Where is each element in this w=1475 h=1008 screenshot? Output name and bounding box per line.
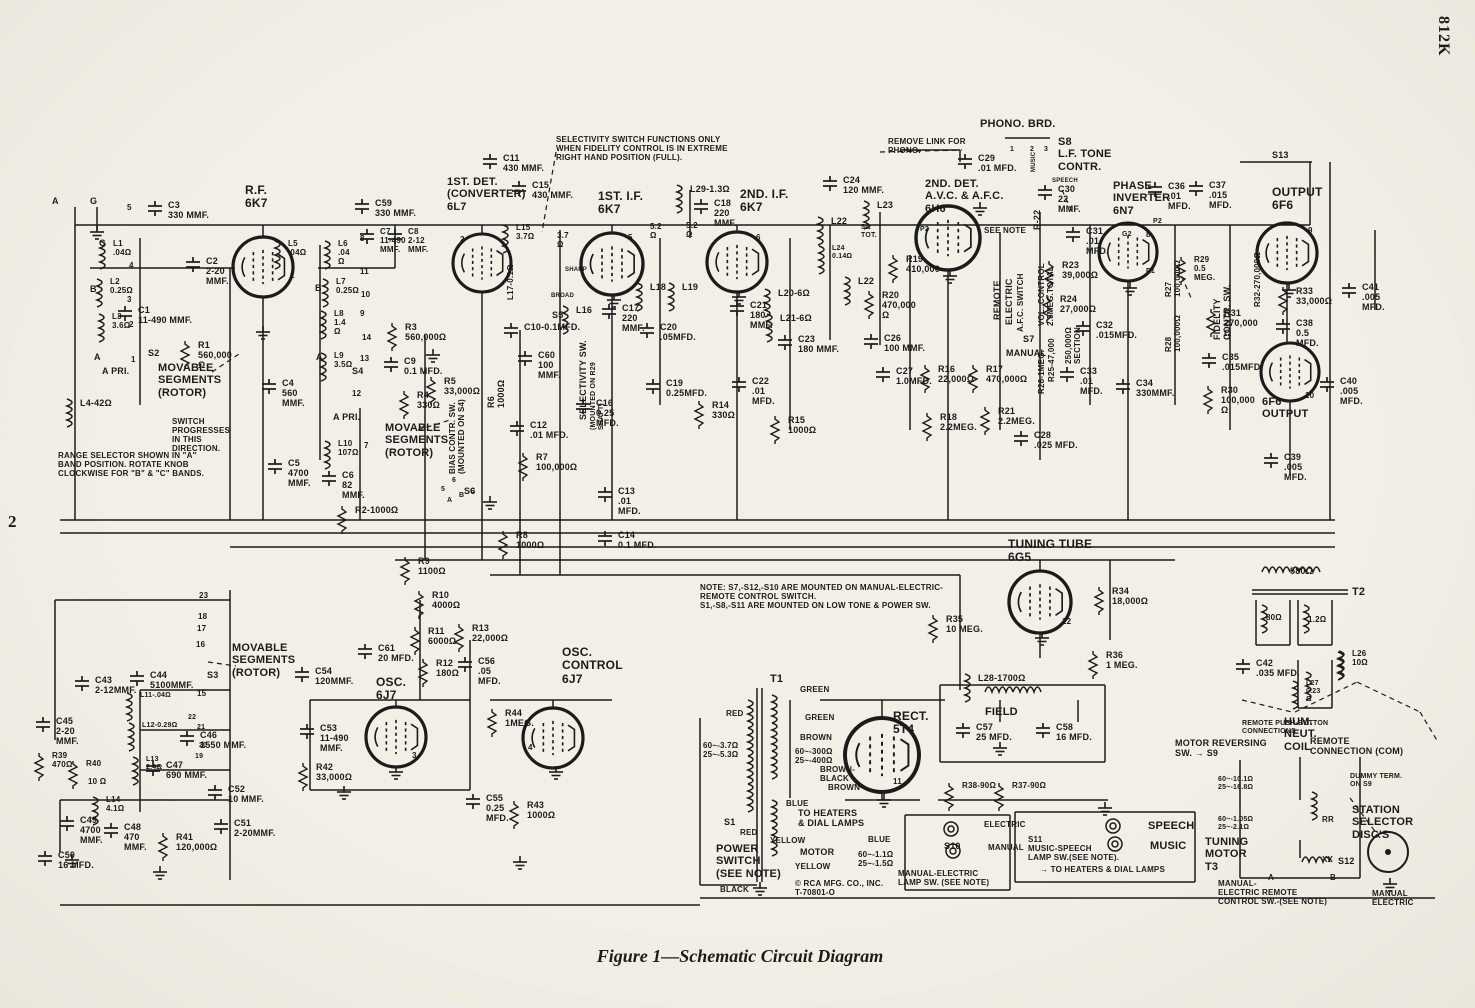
label-l17-0.1: L17-0.1Ω xyxy=(507,264,516,300)
label-power: POWER SWITCH (SEE NOTE) xyxy=(716,843,781,880)
label-r42: R42 33,000Ω xyxy=(316,762,352,782)
label-dummy: DUMMY TERM. ON S9 xyxy=(1350,773,1402,789)
label-r39: R39 470Ω xyxy=(52,752,73,770)
label-manual-: MANUAL- ELECTRIC REMOTE CONTROL SW.-(SEE… xyxy=(1218,880,1327,907)
label-3: 3 xyxy=(1044,146,1048,154)
label-c28: C28 .025 MFD. xyxy=(1034,430,1078,450)
label-580: 580Ω xyxy=(1290,566,1313,576)
label-r23: R23 39,000Ω xyxy=(1062,260,1098,280)
label-1: 1 xyxy=(1010,146,1014,154)
label-l23: L23 xyxy=(877,200,893,210)
label-14: 14 xyxy=(362,334,371,343)
label-music: MUSIC xyxy=(1150,840,1186,852)
label-r5: R5 33,000Ω xyxy=(444,376,480,396)
label-c37: C37 .015 MFD. xyxy=(1209,180,1232,210)
label-250000: 250,000Ω SECTION xyxy=(1065,327,1083,364)
label-selectivity: SELECTIVITY SWITCH FUNCTIONS ONLY WHEN F… xyxy=(556,136,728,163)
label-r7: R7 100,000Ω xyxy=(536,452,577,472)
label-a.f.c.: A.F.C. SWITCH xyxy=(1017,273,1026,332)
label-5.2: 5.2 Ω xyxy=(686,222,698,240)
label-broad: BROAD xyxy=(551,293,574,300)
label-c32: C32 .015MFD. xyxy=(1096,320,1137,340)
figure-caption: Figure 1—Schematic Circuit Diagram xyxy=(540,946,940,967)
label-c24: C24 120 MMF. xyxy=(843,175,884,195)
label-c58: C58 16 MFD. xyxy=(1056,722,1092,742)
label-phono.: PHONO. BRD. xyxy=(980,118,1056,130)
label-selectivity: SELECTIVITY SW. xyxy=(578,340,588,420)
label-bias: BIAS CONTR. SW. (MOUNTED ON S4) xyxy=(449,399,467,474)
label-l19: L19 xyxy=(682,282,698,292)
label-10: 10 Ω xyxy=(88,778,106,787)
label-r36: R36 1 MEG. xyxy=(1106,650,1138,670)
label-motor: MOTOR REVERSING SW. → S9 xyxy=(1175,738,1267,758)
label-8: 8 xyxy=(360,235,365,244)
label-xx: XX xyxy=(1322,856,1333,865)
label-r2-1000: R2-1000Ω xyxy=(355,505,398,515)
label-11: 11 xyxy=(893,778,902,787)
label-r8: R8 1000Ω xyxy=(516,530,544,550)
label-: © RCA MFG. CO., INC. T-70801-O xyxy=(795,880,883,898)
label-r25-47000: R25-47,000 xyxy=(1048,338,1057,382)
label-remote: REMOTE xyxy=(992,280,1002,320)
label-l9: L9 3.5Ω xyxy=(334,352,352,370)
label-r12: R12 180Ω xyxy=(436,658,459,678)
label-10: 10 xyxy=(361,291,370,300)
label-l6: L6 .04 Ω xyxy=(338,240,350,267)
label-brown-: BROWN- BLACK xyxy=(820,766,855,784)
label-l11-.04: L11-.04Ω xyxy=(140,692,171,700)
label-12: 12 xyxy=(352,390,361,399)
page-number: 2 xyxy=(8,512,17,532)
label-c51: C51 2-20MMF. xyxy=(234,818,276,838)
label-a: A PRI. xyxy=(102,366,129,376)
label-c17: C17 220 MMF. xyxy=(622,303,645,333)
label-vol.: VOL. CONTROL 2.5MEG.TOTAL xyxy=(1038,263,1056,326)
label-r32-270000: R32-270,000Ω xyxy=(1254,252,1263,307)
label-manual-electric: MANUAL-ELECTRIC LAMP SW. (SEE NOTE) xyxy=(898,870,989,888)
label-s2: S2 xyxy=(148,348,159,358)
label-c52: C52 10 MMF. xyxy=(228,784,264,804)
label-r10: R10 4000Ω xyxy=(432,590,460,610)
label-s4: S4 xyxy=(352,366,363,376)
label-p2: P2 xyxy=(920,226,929,234)
label-green: GREEN xyxy=(805,714,834,723)
label-electric: ELECTRIC xyxy=(984,821,1026,830)
label-r34: R34 18,000Ω xyxy=(1112,586,1148,606)
label-60-3.7: 60~-3.7Ω 25~-5.3Ω xyxy=(703,742,738,760)
label-c6: C6 82 MMF. xyxy=(342,470,365,500)
label-c38: C38 0.5 MFD. xyxy=(1296,318,1319,348)
label-movable: MOVABLE SEGMENTS (ROTOR) xyxy=(385,422,448,459)
label-c36: C36 .01 MFD. xyxy=(1168,181,1191,211)
label-switch: SWITCH PROGRESSES IN THIS DIRECTION. xyxy=(172,418,230,454)
label-tuning: TUNING MOTOR T3 xyxy=(1205,836,1248,873)
label-60-1.05: 60~-1.05Ω 25~-2.1Ω xyxy=(1218,816,1253,832)
label-black: BLACK xyxy=(720,886,749,895)
label-blue: BLUE xyxy=(868,836,891,845)
label-c43: C43 2-12MMF. xyxy=(95,675,137,695)
label-80: 80Ω xyxy=(1266,614,1282,623)
label-r37-90: R37-90Ω xyxy=(1012,782,1046,791)
label-c60: C60 100 MMF. xyxy=(538,350,561,380)
model-number: 812K xyxy=(1434,16,1452,56)
label-p1: P1 xyxy=(1146,268,1155,276)
label-g: G xyxy=(90,196,97,206)
label-tuning: TUNING TUBE 6G5 xyxy=(1008,538,1092,565)
label-60-1.1: 60~-1.1Ω 25~-1.5Ω xyxy=(858,851,893,869)
label-rr: RR xyxy=(1322,816,1334,825)
label-r38-90: R38-90Ω xyxy=(962,782,996,791)
label-l8: L8 1.4 Ω xyxy=(334,310,346,337)
label-7: 7 xyxy=(364,442,369,451)
label-c57: C57 25 MFD. xyxy=(976,722,1012,742)
label-range: RANGE SELECTOR SHOWN IN "A" BAND POSITIO… xyxy=(58,452,204,479)
label-to: TO HEATERS & DIAL LAMPS xyxy=(798,808,864,828)
label-c49: C49 4700 MMF. xyxy=(80,815,103,845)
label-c30: C30 22 MMF. xyxy=(1058,184,1081,214)
label-r19: R19 410,000 xyxy=(906,254,940,274)
label-c16: C16 0.25 MFD. xyxy=(596,398,619,428)
label-c22: C22 .01 MFD. xyxy=(752,376,775,406)
label-speech: SPEECH xyxy=(1148,820,1194,832)
label-green: GREEN xyxy=(800,686,829,695)
label-l14: L14 4.1Ω xyxy=(106,796,124,814)
label-15: 15 xyxy=(197,690,206,699)
label-l4-42: L4-42Ω xyxy=(80,398,112,408)
label-12: 12 xyxy=(1062,618,1071,627)
label-a: A xyxy=(316,352,323,362)
label-remote: REMOTE PUSH-BUTTON CONNECTIONS xyxy=(1242,720,1328,736)
label-r40: R40 xyxy=(86,760,101,769)
schematic-page: AGC3 330 MMF.R.F. 6K7CL1 .04ΩBL2 0.25ΩL3… xyxy=(0,0,1475,1008)
label-r11: R11 6000Ω xyxy=(428,626,456,646)
label-1st.: 1ST. DET. (CONVERTER) 6L7 xyxy=(447,176,526,213)
label-c48: C48 470 MMF. xyxy=(124,822,147,852)
label-sharp: SHARP xyxy=(565,267,587,274)
label-r6: R6 1000Ω xyxy=(486,380,506,408)
label-r21: R21 2.2MEG. xyxy=(998,406,1035,426)
label-r33: R33 33,000Ω xyxy=(1296,286,1332,306)
label-60-300: 60~-300Ω 25~-400Ω xyxy=(795,748,833,766)
label-6: 6 xyxy=(756,234,761,243)
label-l21-6: L21-6Ω xyxy=(780,313,812,323)
label-b: B xyxy=(459,492,464,500)
label-3.7: 3.7 Ω xyxy=(557,232,569,250)
label-c56: C56 .05 MFD. xyxy=(478,656,501,686)
label-c2: C2 2-20 MMF. xyxy=(206,256,229,286)
label-5: 5 xyxy=(127,204,132,213)
label-r17: R17 470,000Ω xyxy=(986,364,1027,384)
label-c23: C23 180 MMF. xyxy=(798,334,839,354)
label-s12: S12 xyxy=(1338,856,1355,866)
label-18: 18 xyxy=(198,613,207,622)
label-r35: R35 10 MEG. xyxy=(946,614,983,634)
label-brown: BROWN xyxy=(828,784,860,793)
label-c54: C54 120MMF. xyxy=(315,666,353,686)
label-c61: C61 20 MFD. xyxy=(378,643,414,663)
label-yellow: YELLOW xyxy=(795,863,830,872)
label-l3: L3 3.6Ω xyxy=(112,313,130,331)
label-s5: S5 xyxy=(552,310,563,320)
label-l26: L26 10Ω xyxy=(1352,650,1368,668)
label-s8: S8 L.F. TONE CONTR. xyxy=(1058,136,1112,173)
label-manual: MANUAL ELECTRIC xyxy=(1372,890,1414,908)
label-s13: S13 xyxy=(1272,150,1289,160)
label-osc.: OSC. 6J7 xyxy=(376,676,406,703)
label-c14: C14 0.1 MFD. xyxy=(618,530,657,550)
label-r27: R27 100,000Ω xyxy=(1165,260,1183,297)
label-4: 4 xyxy=(129,262,134,271)
label-movable: MOVABLE SEGMENTS (ROTOR) xyxy=(232,642,295,679)
label-b: B xyxy=(1330,874,1336,883)
label-r20: R20 470,000 Ω xyxy=(882,290,916,320)
label-: → TO HEATERS & DIAL LAMPS xyxy=(1040,866,1165,875)
label-l1: L1 .04Ω xyxy=(113,240,131,258)
label-c55: C55 0.25 MFD. xyxy=(486,793,509,823)
label-11: 11 xyxy=(360,268,369,277)
label-t2: T2 xyxy=(1352,586,1365,598)
label-r.f.: R.F. 6K7 xyxy=(245,184,268,211)
label-2: 2 xyxy=(460,236,465,245)
label-13: 13 xyxy=(360,355,369,364)
label-c53: C53 11-490 MMF. xyxy=(320,723,349,753)
label-r3: R3 560,000Ω xyxy=(405,322,446,342)
label-c8: C8 2-12 MMF. xyxy=(408,228,428,255)
label-c13: C13 .01 MFD. xyxy=(618,486,641,516)
label-l29-1.3: L29-1.3Ω xyxy=(690,184,730,194)
label-a: A xyxy=(94,352,101,362)
label-output: OUTPUT 6F6 xyxy=(1272,186,1323,213)
label-c9: C9 0.1 MFD. xyxy=(404,356,443,376)
label-manual: MANUAL xyxy=(988,844,1024,853)
label-phase: PHASE INVERTER 6N7 xyxy=(1113,180,1170,217)
label-station: STATION SELECTOR DISC'S xyxy=(1352,804,1413,841)
label-electric: ELECTRIC xyxy=(1004,278,1014,325)
label-l7: L7 0.25Ω xyxy=(336,278,359,296)
label-g2: G2 xyxy=(1122,231,1132,239)
label-c7: C7 11-490 MMF. xyxy=(380,228,406,255)
label-l28-1700: L28-1700Ω xyxy=(978,673,1026,683)
label-6: 6 xyxy=(452,477,456,485)
label-r13: R13 22,000Ω xyxy=(472,623,508,643)
label-c4: C4 560 MMF. xyxy=(282,378,305,408)
label-c15: C15 430 MMF. xyxy=(532,180,573,200)
label-1st.: 1ST. I.F. 6K7 xyxy=(598,190,643,217)
label-c40: C40 .005 MFD. xyxy=(1340,376,1363,406)
label-9: 9 xyxy=(360,310,365,319)
label-music: MUSIC xyxy=(1031,152,1038,172)
label-1: 1 xyxy=(290,272,295,281)
label-16: 16 xyxy=(196,641,205,650)
label-remote: REMOTE CONNECTION (COM) xyxy=(1310,736,1403,756)
label-l18: L18 xyxy=(650,282,666,292)
label-rect.: RECT. 5T4 xyxy=(893,710,929,737)
label-brown: BROWN xyxy=(800,734,832,743)
label-c19: C19 0.25MFD. xyxy=(666,378,707,398)
label-22: 22 xyxy=(188,714,196,722)
label-l20-6: L20-6Ω xyxy=(778,288,810,298)
label-r16: R16 22,000Ω xyxy=(938,364,974,384)
label-c18: C18 220 MMF. xyxy=(714,198,737,228)
label-motor: MOTOR xyxy=(800,847,834,857)
label-l12-0.29: L12-0.29Ω xyxy=(142,722,177,730)
label-r28: R28 100,000Ω xyxy=(1165,315,1183,352)
label-s10: S10 xyxy=(944,841,961,851)
label-osc.: OSC. CONTROL 6J7 xyxy=(562,646,623,686)
label-r-22: R-22 xyxy=(1032,210,1042,230)
label-c10-0.1mfd.: C10-0.1MFD. xyxy=(524,322,580,332)
label-c27: C27 1.0MFD. xyxy=(896,366,932,386)
label-l13: L13 2.4Ω xyxy=(146,756,162,772)
label-l22: L22 xyxy=(858,276,874,286)
label-c46: C46 1550 MMF. xyxy=(200,730,246,750)
label-l15: L15 3.7Ω xyxy=(516,224,534,242)
label-a: A PRI. xyxy=(333,412,360,422)
label-l16: L16 xyxy=(576,305,592,315)
label-9: 9 xyxy=(1308,227,1313,236)
label-3: 3 xyxy=(127,296,132,305)
label-r43: R43 1000Ω xyxy=(527,800,555,820)
label-remove: REMOVE LINK FOR PHONO. xyxy=(888,138,966,156)
label-5: 5 xyxy=(441,486,445,494)
label-note: NOTE: S7,-S12,-S10 ARE MOUNTED ON MANUAL… xyxy=(700,584,943,611)
label-s3: S3 xyxy=(207,670,218,680)
label-8: 8 xyxy=(1146,231,1151,240)
label-r26-1meg.: R26-1MEG. xyxy=(1038,350,1047,394)
label-r41: R41 120,000Ω xyxy=(176,832,217,852)
label-c5: C5 4700 MMF. xyxy=(288,458,311,488)
label-c12: C12 .01 MFD. xyxy=(530,420,569,440)
label-c29: C29 .01 MFD. xyxy=(978,153,1017,173)
label-s1: S1 xyxy=(724,817,735,827)
label-movable: MOVABLE SEGMENTS (ROTOR) xyxy=(158,362,221,399)
label-c47: C47 690 MMF. xyxy=(166,760,207,780)
label-c59: C59 330 MMF. xyxy=(375,198,416,218)
label-2: 2 xyxy=(129,321,134,330)
label-field: FIELD xyxy=(985,706,1018,718)
label-b: B xyxy=(90,284,97,294)
label-l10: L10 107Ω xyxy=(338,440,359,458)
label-2nd.: 2ND. I.F. 6K7 xyxy=(740,188,788,215)
label-r30: R30 100,000 Ω xyxy=(1221,385,1255,415)
label-c39: C39 .005 MFD. xyxy=(1284,452,1307,482)
label-l22: L22 xyxy=(831,216,847,226)
label-l27: L27 0.23 Ω xyxy=(1306,680,1320,703)
label-r29: R29 0.5 MEG. xyxy=(1194,256,1215,283)
label-r31: R31 270,000 Ω xyxy=(1224,308,1258,338)
label-t1: T1 xyxy=(770,673,783,685)
label-c50: C50 16 MFD. xyxy=(58,850,94,870)
label-a: A xyxy=(52,196,59,206)
label-c: C xyxy=(470,488,475,496)
label-r9: R9 1100Ω xyxy=(418,556,446,576)
label-c: C xyxy=(99,238,106,248)
label-s7: S7 xyxy=(1023,334,1034,344)
label-17: 17 xyxy=(197,625,206,634)
label-l2: L2 0.25Ω xyxy=(110,278,133,296)
label-3: 3 xyxy=(412,752,417,761)
label-c35: C35 .015MFD. xyxy=(1222,352,1263,372)
label-s11: S11 MUSIC-SPEECH LAMP SW.(SEE NOTE). xyxy=(1028,836,1119,863)
label-c20: C20 .05MFD. xyxy=(660,322,696,342)
label-c42: C42 .035 MFD. xyxy=(1256,658,1300,678)
label-r44: R44 1MEG. xyxy=(505,708,534,728)
label-c41: C41 .005 MFD. xyxy=(1362,282,1385,312)
label-red: RED xyxy=(726,710,744,719)
label-l5: L5 .04Ω xyxy=(288,240,306,258)
label-1: 1 xyxy=(131,356,136,365)
label-r14: R14 330Ω xyxy=(712,400,735,420)
label-5: 5 xyxy=(628,234,633,243)
label-60-10.1: 60~-10.1Ω 25~-16.8Ω xyxy=(1218,776,1253,792)
label-1.2: 1.2Ω xyxy=(1308,616,1326,625)
label-c11: C11 430 MMF. xyxy=(503,153,544,173)
label-p2: P2 xyxy=(1153,218,1162,226)
label-c26: C26 100 MMF. xyxy=(884,333,925,353)
label-c34: C34 330MMF. xyxy=(1136,378,1174,398)
label-c1: C1 11-490 MMF. xyxy=(138,305,192,325)
label-6f6: 6F6 OUTPUT xyxy=(1262,396,1308,421)
label-4: 4 xyxy=(528,744,533,753)
label-r15: R15 1000Ω xyxy=(788,415,816,435)
label-r4: R4 330Ω xyxy=(417,390,440,410)
label-c21: C21 180 MMF. xyxy=(750,300,773,330)
label-5: 5Ω TOT. xyxy=(861,224,877,240)
label-2nd.: 2ND. DET. A.V.C. & A.F.C. 6H6 xyxy=(925,178,1004,215)
label-b: B xyxy=(315,283,322,293)
label-c33: C33 .01 MFD. xyxy=(1080,366,1103,396)
label-red: RED xyxy=(740,829,758,838)
label-c3: C3 330 MMF. xyxy=(168,200,209,220)
label-r18: R18 2.2MEG. xyxy=(940,412,977,432)
label-a: A xyxy=(447,497,452,505)
label-23: 23 xyxy=(199,592,208,601)
label-l24: L24 0.14Ω xyxy=(832,245,852,261)
labels-layer: AGC3 330 MMF.R.F. 6K7CL1 .04ΩBL2 0.25ΩL3… xyxy=(0,0,1475,1008)
label-c31: C31 .01 MFD. xyxy=(1086,226,1109,256)
label-c45: C45 2-20 MMF. xyxy=(56,716,79,746)
label-see: SEE NOTE xyxy=(984,227,1026,236)
label-c44: C44 5100MMF. xyxy=(150,670,194,690)
label-r24: R24 27,000Ω xyxy=(1060,294,1096,314)
label-5.2: 5.2 Ω xyxy=(650,223,662,241)
